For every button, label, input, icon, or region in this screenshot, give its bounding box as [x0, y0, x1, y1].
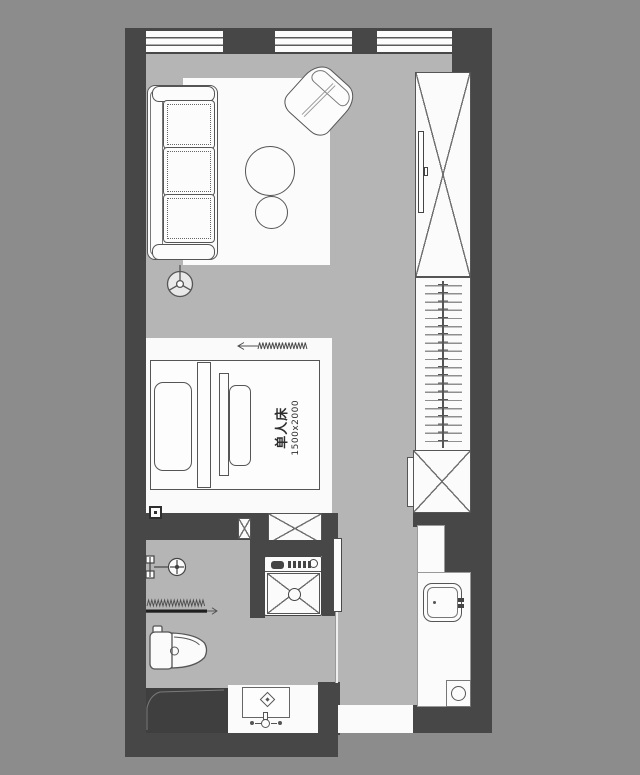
structural-column — [238, 518, 251, 539]
counter-upper — [417, 525, 445, 574]
wardrobe-rod — [442, 281, 444, 448]
wall-right — [471, 54, 492, 733]
washer-drum-center — [288, 588, 301, 601]
faucet-handle — [278, 721, 282, 725]
faucet-handle — [250, 721, 254, 725]
floor-plan: 单人床 1500x2000 — [0, 0, 640, 775]
floor-drain — [446, 680, 471, 707]
sofa-cushion — [163, 100, 215, 149]
sink-drain-dot — [433, 601, 436, 604]
sliding-door-track — [335, 612, 338, 683]
entry-opening — [338, 705, 413, 733]
window-3 — [377, 31, 452, 52]
duct-shaft — [143, 688, 228, 734]
sink-basin — [427, 587, 458, 618]
basin-drain-symbol — [260, 692, 276, 708]
sofa-cushion — [163, 194, 215, 243]
coffee-table — [245, 146, 295, 196]
sink-tap — [458, 604, 464, 608]
faucet-dash — [271, 723, 277, 724]
washer-dial — [309, 559, 318, 568]
floor-drain-symbol — [149, 506, 162, 519]
bed-label-size: 1500x2000 — [291, 400, 302, 456]
bed-board-thin — [219, 373, 229, 476]
wall-bottom — [125, 733, 338, 757]
basin-faucet-head — [261, 719, 270, 728]
sofa-back — [150, 90, 163, 256]
bed-board — [197, 362, 211, 488]
bed-label-name: 单人床 — [275, 400, 291, 456]
sliding-door-leaf — [333, 538, 342, 612]
washer-control-panel — [265, 557, 321, 572]
bed-pillow — [154, 382, 192, 471]
washer-drawer — [271, 561, 284, 569]
low-cabinet-door — [407, 457, 414, 507]
wall-left — [125, 28, 146, 757]
sink-tap — [458, 598, 464, 602]
window-2 — [275, 31, 352, 52]
tv-mount — [424, 167, 428, 176]
sofa-cushion — [163, 147, 215, 196]
counter-sink — [423, 583, 462, 622]
faucet-dash — [255, 723, 261, 724]
side-table — [255, 196, 288, 229]
wall-bathroom-door-jamb — [318, 682, 340, 735]
low-cabinet — [413, 450, 471, 513]
sofa-armrest — [152, 244, 215, 260]
sofa — [147, 85, 218, 260]
window-1 — [146, 31, 223, 52]
washing-machine — [264, 556, 322, 616]
washer-drum — [267, 573, 320, 614]
bed-label: 单人床 1500x2000 — [244, 383, 334, 473]
